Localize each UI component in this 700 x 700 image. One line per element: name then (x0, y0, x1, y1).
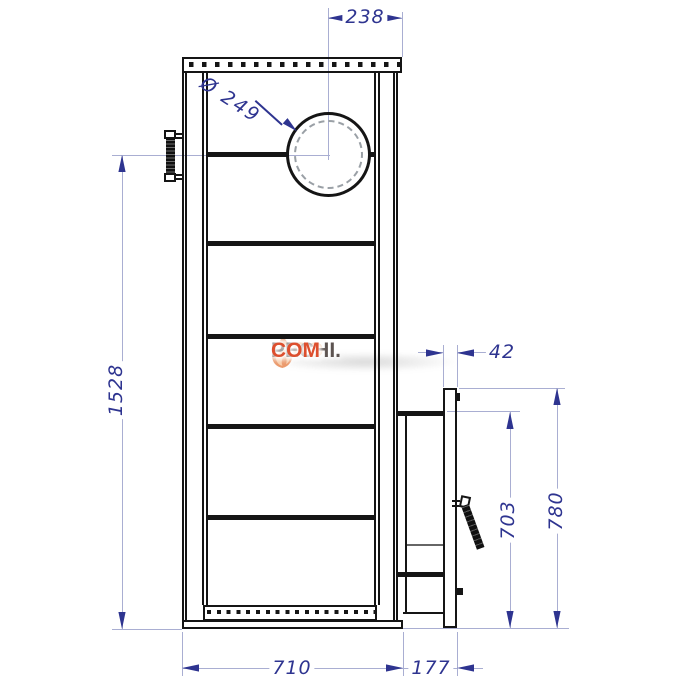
dim-door-depth-label: 177 (408, 659, 453, 679)
ext-line-door-total-top (459, 388, 565, 389)
watermark-com: COM (271, 339, 320, 363)
side-flange-pin-top (175, 133, 184, 139)
top-plate-perforations (189, 62, 403, 67)
door-mid-line (407, 544, 443, 546)
arrow-total-height-top (118, 155, 126, 172)
dim-top-width-label: 238 (342, 8, 387, 28)
ext-line-base-left (182, 632, 183, 676)
base-plate (182, 620, 403, 629)
door-frame-line (405, 416, 407, 612)
dim-door-height-label: 703 (499, 497, 519, 542)
arrow-door-height-top (506, 412, 514, 429)
shelf-bar-1-left (208, 152, 287, 157)
door-hinge-nub (455, 393, 460, 401)
dim-door-total-label: 780 (547, 488, 567, 533)
flue-collar-dashed-ring (294, 120, 363, 189)
left-outer-wall (182, 73, 187, 620)
arrow-door-total-top (553, 388, 561, 405)
side-flange-bolt-top (164, 130, 176, 139)
arrow-base-width-right (386, 664, 403, 672)
shelf-bar-2 (208, 241, 376, 246)
door-handle-bar (461, 504, 484, 550)
dim-line-door-depth-tail (474, 668, 483, 669)
shelf-bar-5 (208, 515, 376, 520)
arrow-door-height-bottom (506, 611, 514, 628)
arrow-base-width-left (182, 664, 199, 672)
bottom-plate-perforations (207, 610, 377, 614)
side-flange-pin-bottom (175, 174, 184, 180)
right-outer-wall (393, 73, 398, 620)
dim-total-height-label: 1528 (107, 361, 127, 419)
door-latch-tab (455, 588, 463, 595)
ground-line (403, 628, 569, 629)
dim-door-gap-label: 42 (486, 343, 518, 363)
arrow-door-depth-right (457, 664, 474, 672)
door-bottom-line (403, 612, 443, 614)
shelf-bar-3 (208, 334, 376, 339)
side-flange-bolt-bottom (164, 173, 176, 182)
shelf-bar-4 (208, 424, 376, 429)
door-sill-connector (398, 572, 443, 577)
dim-base-width-label: 710 (269, 659, 314, 679)
drawing-canvas: PROPECHI.COM (0, 0, 700, 700)
ext-line-base-right (403, 632, 404, 676)
arrow-total-height-bottom (118, 612, 126, 629)
arrow-door-total-bottom (553, 611, 561, 628)
ext-line-height-bottom (112, 629, 182, 630)
ext-line-door-depth-right (457, 632, 458, 676)
